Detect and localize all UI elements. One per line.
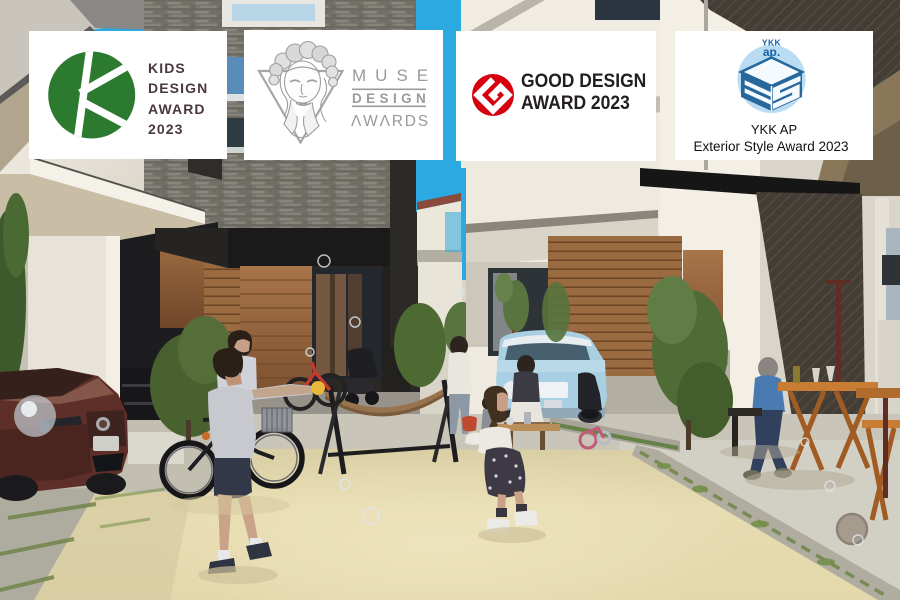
svg-text:MUSE: MUSE: [352, 66, 437, 85]
svg-text:DESIGN: DESIGN: [352, 91, 430, 106]
svg-text:ΛWΛRDS: ΛWΛRDS: [351, 113, 430, 130]
